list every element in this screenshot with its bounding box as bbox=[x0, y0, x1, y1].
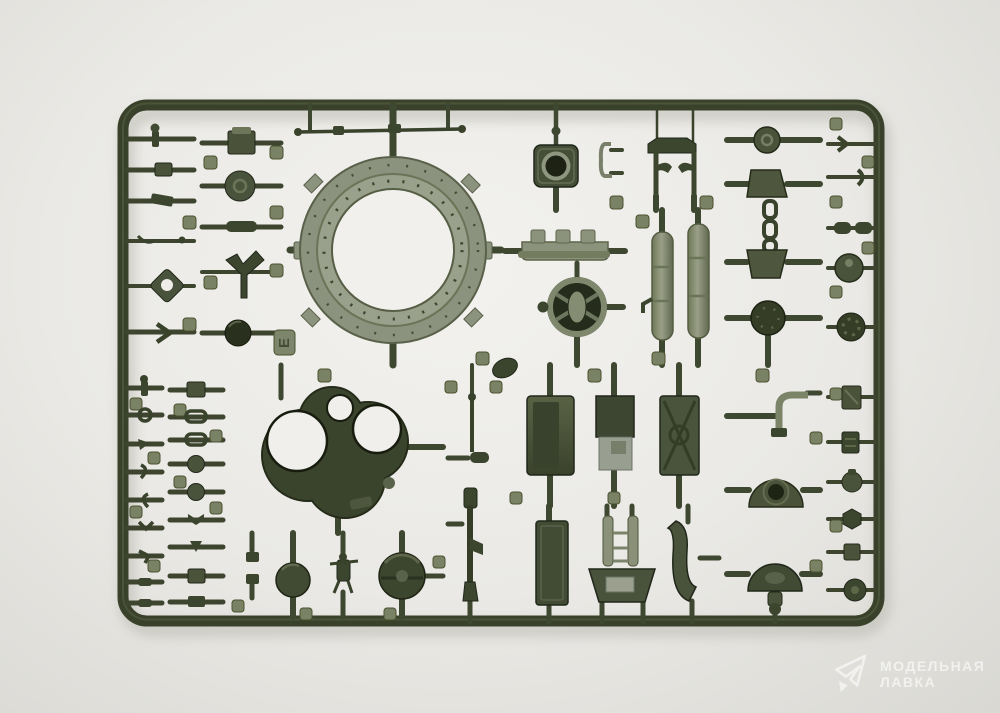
part-number-tag bbox=[130, 506, 142, 518]
turret-roof-opening bbox=[353, 405, 401, 453]
small-part-detail bbox=[851, 586, 859, 594]
small-part bbox=[855, 222, 872, 234]
dome-knob-cap bbox=[769, 603, 781, 615]
round-hatch-knob bbox=[845, 259, 853, 267]
part-number-tag bbox=[830, 118, 842, 130]
tow-bracket-foot bbox=[771, 428, 787, 437]
part-number-tag bbox=[174, 476, 186, 488]
part-number-tag bbox=[510, 492, 522, 504]
small-part bbox=[228, 131, 255, 154]
figure-part-head bbox=[339, 553, 347, 561]
plate-part bbox=[747, 250, 787, 278]
mounting-bench-tab bbox=[531, 230, 545, 243]
antenna-end bbox=[458, 125, 466, 133]
round-hatch bbox=[835, 254, 863, 282]
part-number-tag bbox=[210, 430, 222, 442]
small-part bbox=[188, 596, 205, 607]
small-part bbox=[225, 171, 255, 201]
disc-part bbox=[754, 127, 780, 153]
part-number-tag bbox=[232, 600, 244, 612]
part-number-tag bbox=[204, 156, 217, 169]
antenna-end bbox=[294, 128, 302, 136]
part-number-tag bbox=[300, 608, 312, 620]
housing-bore bbox=[768, 484, 784, 500]
part-number-tag bbox=[130, 398, 142, 410]
fuel-tank bbox=[688, 224, 709, 338]
part-number-tag bbox=[148, 560, 160, 572]
gun-muzzle bbox=[463, 582, 478, 601]
tool-box-notch bbox=[611, 441, 626, 454]
antenna-fitting bbox=[388, 124, 401, 133]
small-part bbox=[843, 509, 861, 529]
part-number-tag bbox=[862, 242, 874, 254]
bucket-panel bbox=[606, 577, 634, 592]
commander-hatch-bore bbox=[546, 156, 567, 177]
figure-part-leg bbox=[334, 581, 339, 593]
small-part bbox=[848, 469, 856, 475]
sprue: E bbox=[123, 104, 883, 630]
turret-ring-tab bbox=[301, 308, 320, 327]
small-part bbox=[138, 578, 152, 586]
turret-ring-tab bbox=[304, 174, 323, 193]
small-part bbox=[150, 193, 173, 207]
turret-ring-tab bbox=[464, 308, 483, 327]
part-number-tag bbox=[148, 452, 160, 464]
watermark-line2: ЛАВКА bbox=[880, 674, 985, 690]
small-part bbox=[155, 163, 172, 176]
small-part bbox=[188, 484, 205, 501]
turret-roof-opening bbox=[327, 395, 353, 421]
plate-part bbox=[747, 170, 787, 197]
fan-cover-hub bbox=[396, 570, 408, 582]
part-number-tag bbox=[830, 196, 842, 208]
clip-part bbox=[246, 552, 259, 562]
sprue-photo-svg: E bbox=[0, 0, 1000, 713]
round-mount bbox=[751, 301, 785, 335]
tool-box-top bbox=[596, 396, 634, 437]
watermark-text: МОДЕЛЬНАЯ ЛАВКА bbox=[880, 658, 985, 690]
part-number-tag bbox=[588, 369, 601, 382]
paper-plane-logo-icon bbox=[833, 652, 871, 696]
small-part bbox=[226, 251, 264, 298]
part-number-tag bbox=[210, 502, 222, 514]
part-number-tag bbox=[810, 560, 822, 572]
road-wheel-hub bbox=[568, 291, 586, 323]
fuel-tank-crank bbox=[643, 299, 652, 313]
road-wheel-knob bbox=[538, 302, 549, 313]
small-part bbox=[138, 599, 152, 607]
part-number-tag bbox=[270, 146, 283, 159]
turret-roof-detail bbox=[383, 477, 395, 489]
small-part bbox=[225, 320, 251, 346]
part-number-tag bbox=[204, 276, 217, 289]
part-number-tag bbox=[608, 492, 620, 504]
part-number-tag bbox=[318, 369, 331, 382]
part-number-tag bbox=[270, 264, 283, 277]
mounting-bench-lip bbox=[518, 251, 610, 258]
part-number-tag bbox=[610, 196, 623, 209]
part-number-tag bbox=[490, 381, 502, 393]
part-number-tag bbox=[270, 206, 283, 219]
cap-part bbox=[276, 563, 310, 597]
tow-bracket bbox=[779, 395, 808, 433]
small-part bbox=[161, 279, 173, 291]
turret-roof-opening bbox=[267, 411, 327, 471]
part-number-tag bbox=[756, 369, 769, 382]
chain-link bbox=[764, 221, 776, 238]
part-number-tag bbox=[862, 156, 874, 168]
travel-lock-yoke bbox=[648, 138, 696, 153]
part-number-tag bbox=[183, 318, 196, 331]
part-number-tag bbox=[183, 216, 196, 229]
mounting-bench-tab bbox=[556, 230, 570, 243]
figure-part-leg bbox=[348, 581, 352, 593]
part-number-tag bbox=[830, 388, 842, 400]
round-part bbox=[837, 313, 865, 341]
part-number-tag bbox=[700, 196, 713, 209]
small-part bbox=[140, 375, 148, 383]
pod-part bbox=[470, 452, 489, 463]
ladder-rail bbox=[603, 516, 613, 566]
small-part bbox=[151, 124, 160, 133]
stowage-box-face bbox=[533, 402, 559, 468]
clip-part bbox=[246, 574, 259, 584]
fender bbox=[668, 521, 696, 601]
chain-link bbox=[764, 201, 776, 218]
dome-cover-hatch bbox=[765, 572, 785, 584]
part-number-tag bbox=[652, 352, 665, 365]
small-part bbox=[187, 382, 205, 397]
watermark: МОДЕЛЬНАЯ ЛАВКА bbox=[833, 652, 985, 696]
small-part bbox=[188, 514, 204, 525]
antenna-rod bbox=[298, 129, 462, 132]
small-part bbox=[141, 381, 148, 396]
part-number-tag bbox=[636, 215, 649, 228]
small-part bbox=[188, 456, 205, 473]
part-number-tag bbox=[445, 381, 457, 393]
small-part bbox=[188, 569, 205, 583]
part-number-tag bbox=[384, 608, 396, 620]
product-photo: E МОДЕЛЬНАЯ ЛАВКА bbox=[0, 0, 1000, 713]
part-number-tag bbox=[830, 520, 842, 532]
sprue-letter: E bbox=[276, 338, 293, 348]
part-number-tag bbox=[174, 404, 186, 416]
small-part bbox=[226, 221, 257, 232]
pin-part-head bbox=[468, 393, 476, 401]
ladder-rail bbox=[628, 516, 638, 566]
part-number-tag bbox=[810, 432, 822, 444]
part-number-tag bbox=[433, 556, 445, 568]
mounting-bench-tab bbox=[581, 230, 595, 243]
small-part bbox=[844, 544, 860, 560]
figure-part-arms bbox=[330, 561, 358, 564]
turret-ring-bore bbox=[332, 189, 454, 311]
small-part bbox=[179, 237, 186, 244]
part-gate bbox=[552, 127, 561, 136]
fuel-tank bbox=[652, 232, 673, 340]
oval-hatch bbox=[489, 354, 520, 381]
small-part bbox=[152, 131, 159, 147]
part-number-tag bbox=[476, 352, 489, 365]
small-part bbox=[834, 222, 851, 234]
antenna-fitting bbox=[333, 126, 344, 135]
small-part bbox=[232, 127, 251, 134]
small-part bbox=[842, 432, 859, 453]
part-number-tag bbox=[830, 286, 842, 298]
watermark-line1: МОДЕЛЬНАЯ bbox=[880, 658, 985, 674]
